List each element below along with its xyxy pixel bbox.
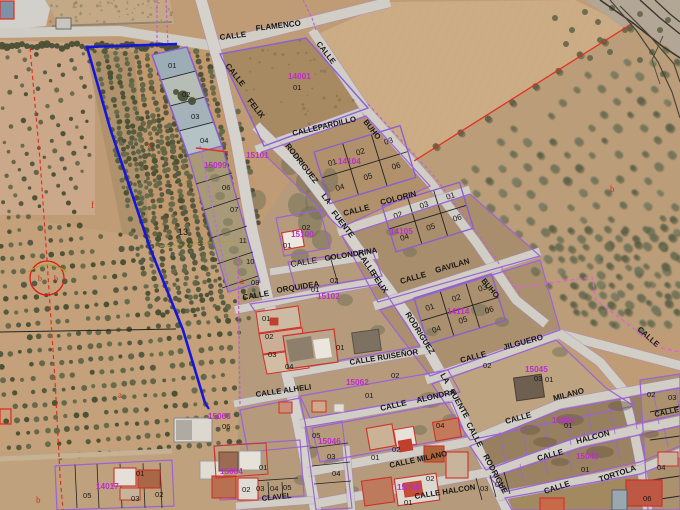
- svg-text:06: 06: [643, 494, 651, 503]
- svg-text:14105: 14105: [390, 227, 413, 236]
- svg-text:14001: 14001: [288, 72, 311, 81]
- svg-text:01: 01: [371, 453, 379, 462]
- svg-text:01: 01: [293, 83, 301, 92]
- svg-text:01: 01: [283, 241, 291, 250]
- svg-text:04: 04: [270, 484, 278, 493]
- svg-text:02: 02: [426, 474, 434, 483]
- svg-text:15046: 15046: [318, 437, 341, 446]
- svg-text:02: 02: [392, 445, 400, 454]
- svg-text:15063: 15063: [208, 412, 231, 421]
- svg-text:02: 02: [242, 485, 250, 494]
- svg-text:15099: 15099: [204, 161, 227, 170]
- svg-text:b: b: [610, 184, 615, 194]
- svg-text:02: 02: [647, 390, 655, 399]
- svg-text:06: 06: [222, 422, 230, 431]
- svg-text:01: 01: [262, 314, 270, 323]
- svg-text:a: a: [148, 140, 152, 150]
- svg-text:02: 02: [182, 90, 190, 99]
- svg-text:14114: 14114: [447, 307, 470, 316]
- svg-text:01: 01: [404, 498, 412, 507]
- svg-text:b: b: [38, 274, 42, 283]
- svg-text:05: 05: [283, 483, 291, 492]
- svg-text:03: 03: [256, 484, 264, 493]
- svg-text:01: 01: [136, 469, 144, 478]
- svg-text:a: a: [118, 390, 122, 400]
- svg-text:a: a: [240, 276, 244, 286]
- svg-text:02: 02: [483, 361, 491, 370]
- svg-text:04: 04: [495, 480, 503, 489]
- svg-text:15064: 15064: [220, 467, 243, 476]
- svg-text:01: 01: [168, 61, 176, 70]
- svg-text:15044: 15044: [552, 416, 575, 425]
- svg-text:15045: 15045: [525, 365, 548, 374]
- svg-text:b: b: [36, 495, 41, 505]
- svg-text:f: f: [91, 200, 94, 210]
- svg-text:04: 04: [332, 469, 340, 478]
- svg-text:04: 04: [285, 362, 293, 371]
- svg-text:03: 03: [668, 393, 676, 402]
- svg-text:15102: 15102: [317, 292, 340, 301]
- svg-text:03: 03: [268, 350, 276, 359]
- svg-text:03: 03: [534, 374, 542, 383]
- svg-text:03: 03: [327, 452, 335, 461]
- svg-text:09: 09: [251, 278, 259, 287]
- svg-text:14104: 14104: [338, 157, 361, 166]
- svg-text:02: 02: [391, 371, 399, 380]
- svg-text:02: 02: [330, 276, 338, 285]
- svg-text:11: 11: [239, 236, 247, 245]
- svg-text:02: 02: [155, 490, 163, 499]
- svg-text:04: 04: [657, 463, 665, 472]
- svg-text:13: 13: [178, 227, 188, 237]
- svg-text:10: 10: [246, 257, 254, 266]
- svg-text:01: 01: [336, 343, 344, 352]
- svg-text:15066: 15066: [397, 483, 420, 492]
- svg-text:15101: 15101: [246, 151, 269, 160]
- svg-text:14017: 14017: [96, 482, 119, 491]
- svg-text:04: 04: [436, 421, 444, 430]
- svg-text:15062: 15062: [346, 378, 369, 387]
- svg-text:01: 01: [259, 463, 267, 472]
- svg-text:03: 03: [480, 484, 488, 493]
- svg-text:01: 01: [365, 391, 373, 400]
- svg-text:15100: 15100: [291, 230, 314, 239]
- svg-text:05: 05: [83, 491, 91, 500]
- svg-text:b: b: [54, 274, 58, 283]
- svg-text:01: 01: [545, 375, 553, 384]
- svg-text:15043: 15043: [576, 452, 599, 461]
- svg-text:01: 01: [581, 465, 589, 474]
- svg-text:03: 03: [131, 494, 139, 503]
- svg-text:07: 07: [230, 205, 238, 214]
- svg-text:03: 03: [191, 112, 199, 121]
- svg-text:02: 02: [265, 332, 273, 341]
- svg-text:04: 04: [200, 136, 208, 145]
- svg-text:06: 06: [222, 183, 230, 192]
